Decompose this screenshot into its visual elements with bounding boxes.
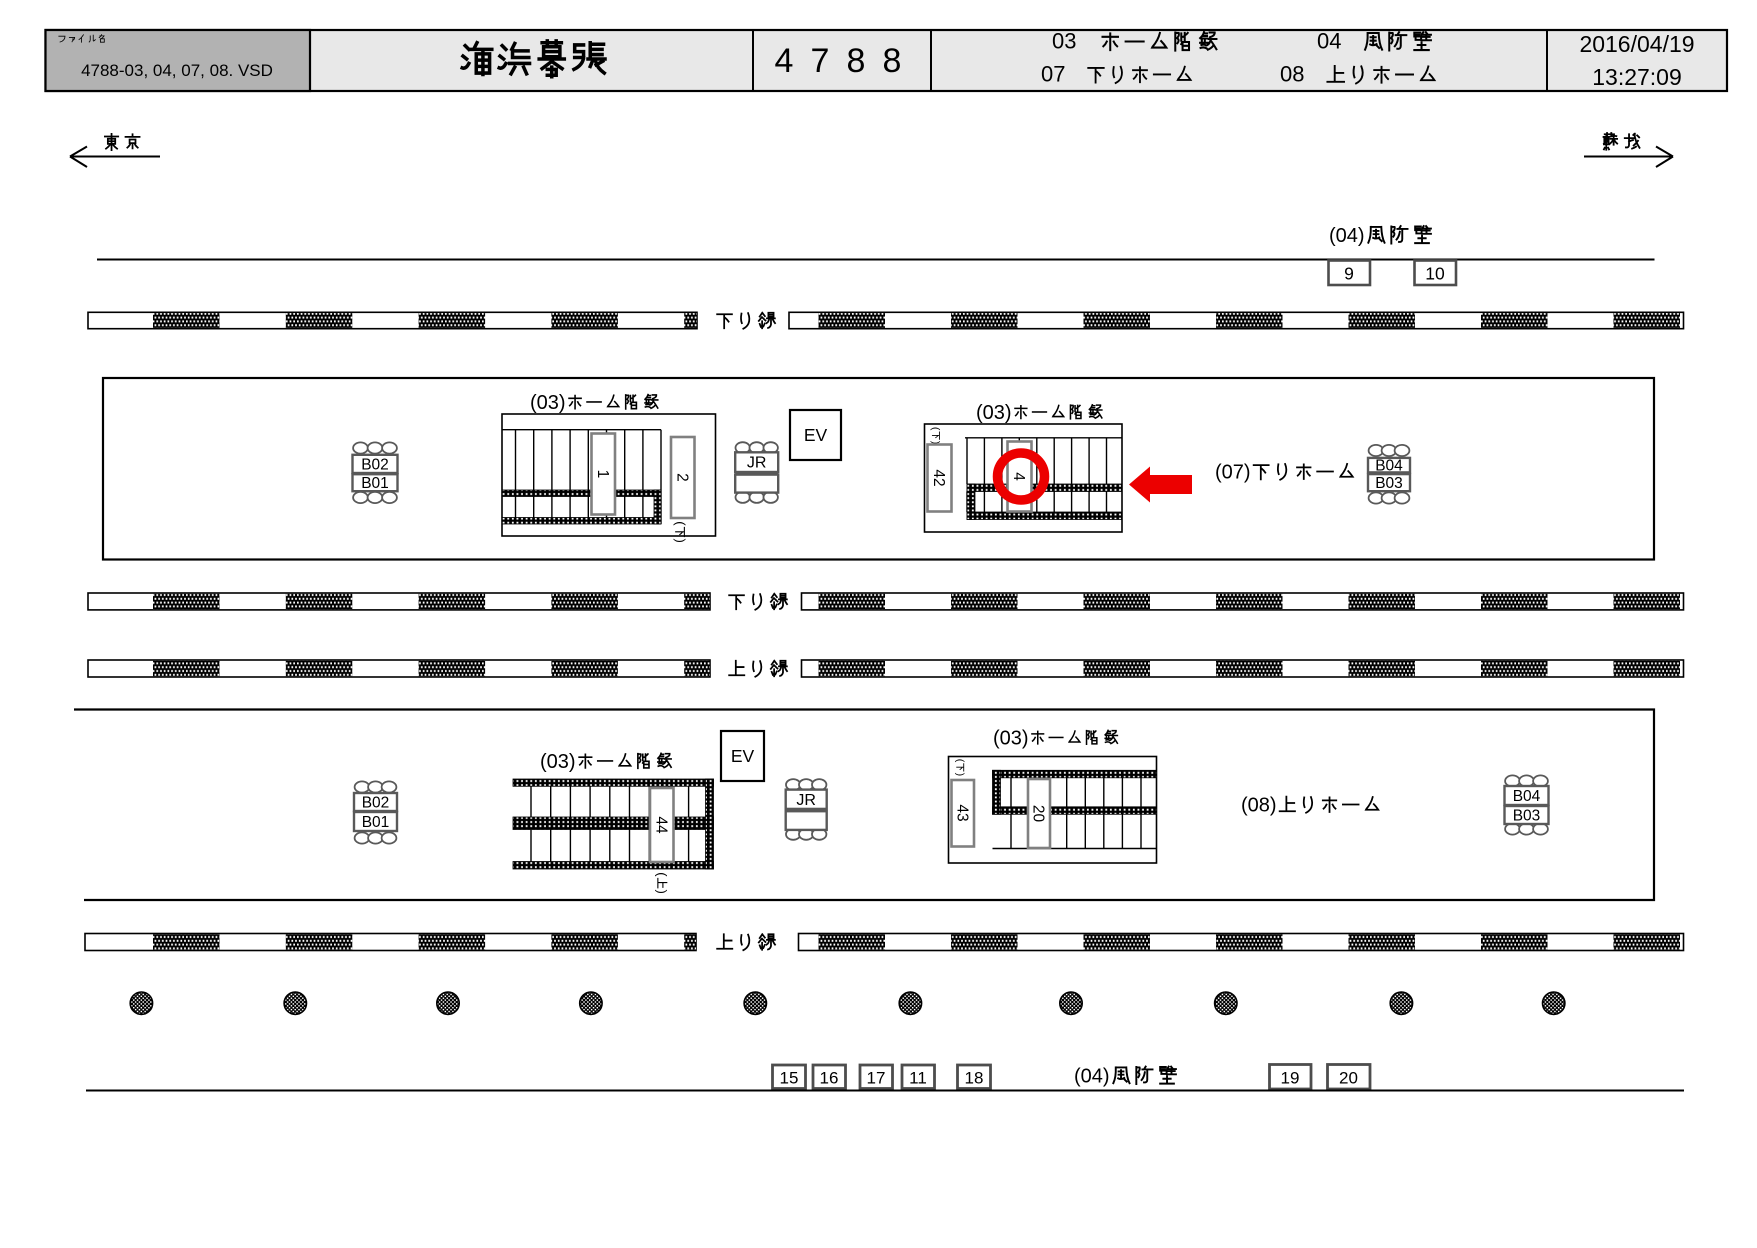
svg-text:(: (: [673, 521, 688, 526]
svg-text:(07): (07): [1215, 462, 1251, 484]
svg-text:8: 8: [883, 42, 902, 80]
svg-text:2: 2: [673, 473, 690, 482]
svg-text:10: 10: [1425, 264, 1445, 284]
svg-text:(03): (03): [540, 751, 576, 773]
svg-text:EV: EV: [731, 746, 755, 766]
svg-text:B04: B04: [1513, 788, 1541, 805]
svg-text:(: (: [654, 872, 669, 877]
svg-text:B03: B03: [1513, 808, 1541, 825]
svg-text:08: 08: [1280, 62, 1304, 87]
svg-text:(04): (04): [1329, 225, 1365, 247]
svg-text:EV: EV: [804, 425, 828, 445]
svg-text:4788-03, 04, 07, 08. VSD: 4788-03, 04, 07, 08. VSD: [81, 61, 273, 80]
svg-text:B01: B01: [361, 475, 389, 492]
svg-text:20: 20: [1339, 1069, 1358, 1088]
svg-text:B02: B02: [361, 456, 389, 473]
svg-text:JR: JR: [747, 455, 767, 472]
svg-text:18: 18: [965, 1069, 984, 1088]
svg-text:(03): (03): [530, 392, 566, 414]
svg-text:): ): [654, 890, 669, 894]
svg-text:(: (: [930, 427, 942, 431]
svg-text:13:27:09: 13:27:09: [1592, 64, 1682, 90]
svg-text:9: 9: [1344, 264, 1354, 284]
svg-text:43: 43: [953, 804, 970, 821]
svg-text:17: 17: [867, 1069, 886, 1088]
svg-text:11: 11: [909, 1069, 927, 1088]
svg-text:03: 03: [1052, 29, 1076, 54]
svg-text:4: 4: [1010, 472, 1027, 481]
svg-text:(: (: [954, 759, 966, 763]
svg-text:8: 8: [847, 42, 866, 80]
svg-text:1: 1: [594, 470, 611, 479]
svg-text:19: 19: [1281, 1069, 1300, 1088]
svg-text:JR: JR: [796, 792, 816, 809]
svg-text:42: 42: [930, 469, 947, 486]
svg-text:): ): [954, 773, 966, 777]
svg-text:B04: B04: [1375, 458, 1403, 475]
svg-text:(08): (08): [1241, 795, 1277, 817]
svg-text:4: 4: [775, 42, 794, 80]
svg-text:B02: B02: [362, 795, 390, 812]
svg-text:(03): (03): [976, 402, 1012, 424]
svg-text:7: 7: [811, 42, 830, 80]
svg-text:(03): (03): [993, 728, 1029, 750]
svg-text:04: 04: [1317, 29, 1341, 54]
svg-text:(04): (04): [1074, 1066, 1110, 1088]
svg-text:): ): [673, 539, 688, 543]
svg-text:2016/04/19: 2016/04/19: [1579, 31, 1694, 57]
svg-text:20: 20: [1030, 805, 1047, 823]
svg-text:B03: B03: [1375, 475, 1403, 492]
svg-text:07: 07: [1041, 62, 1065, 87]
svg-text:44: 44: [652, 816, 669, 834]
svg-text:B01: B01: [362, 814, 390, 831]
svg-text:15: 15: [780, 1069, 799, 1088]
svg-text:16: 16: [820, 1069, 839, 1088]
